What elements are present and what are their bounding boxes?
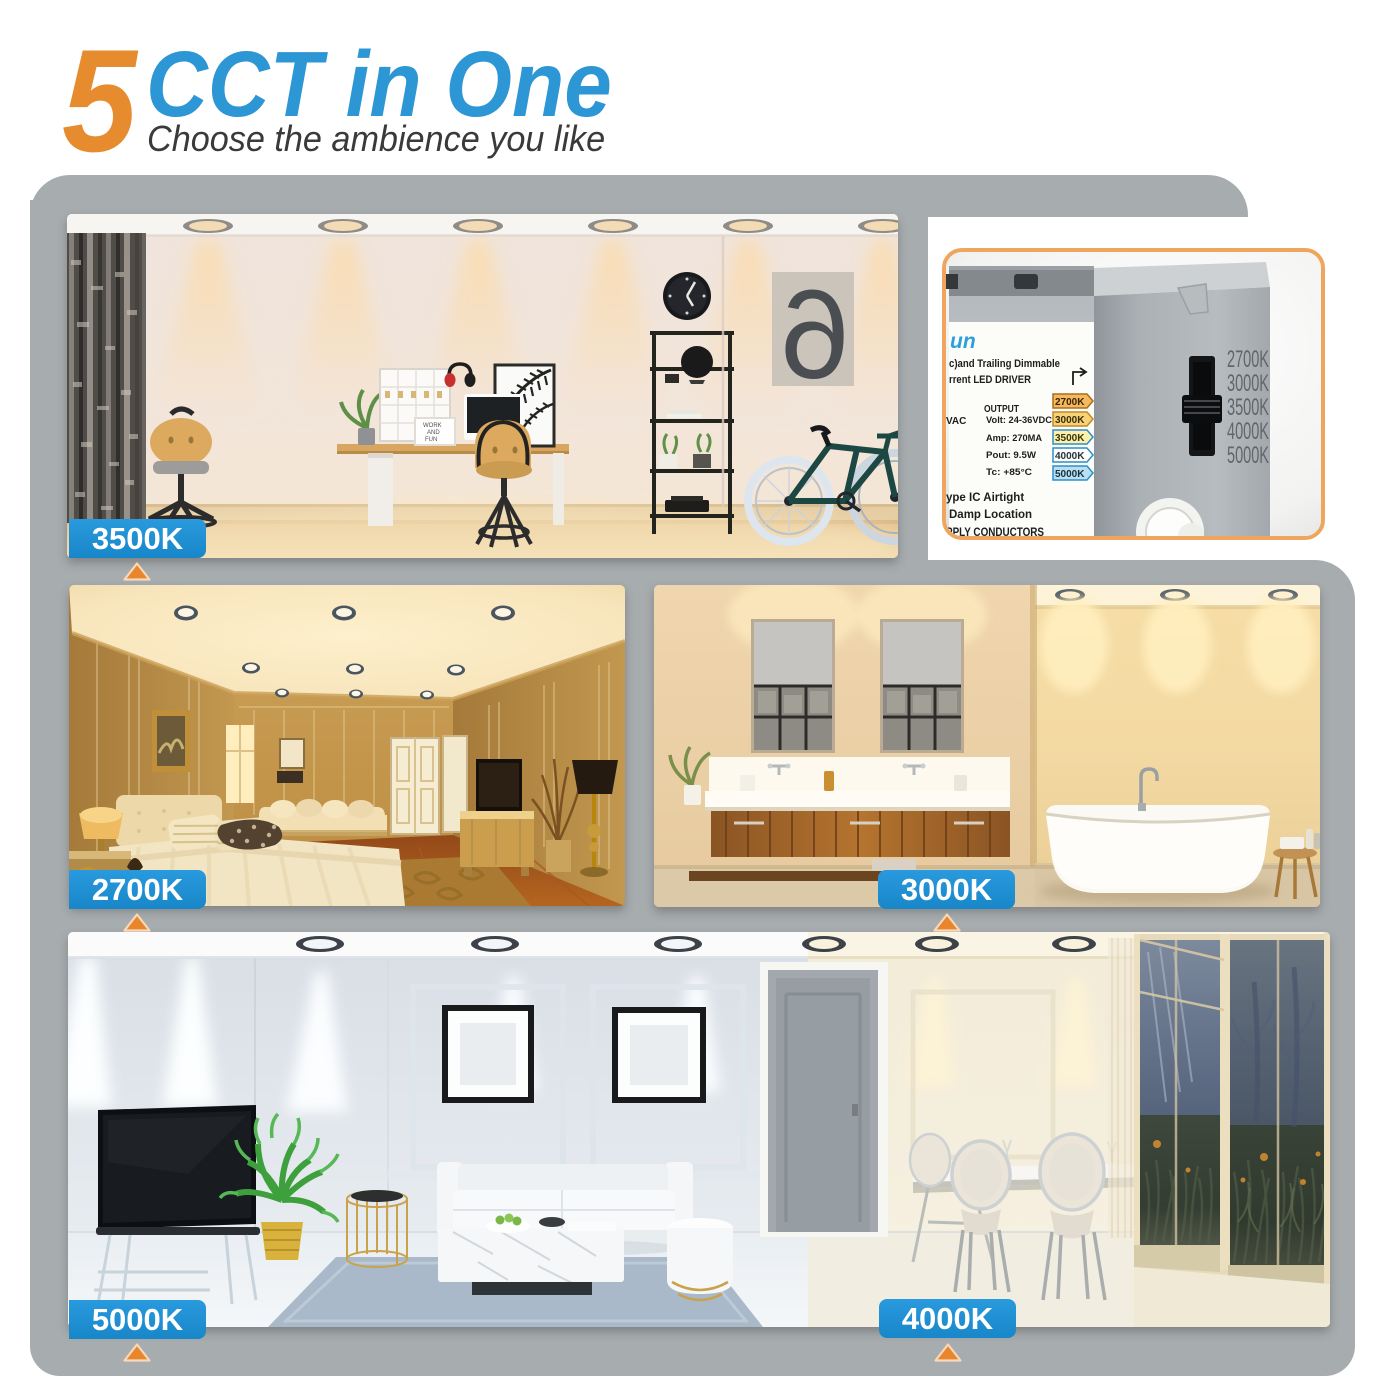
svg-text:un: un: [950, 330, 976, 353]
svg-text:2700K: 2700K: [1055, 397, 1085, 408]
svg-text:Damp Location: Damp Location: [949, 509, 1032, 521]
svg-text:Pout: 9.5W: Pout: 9.5W: [986, 450, 1036, 461]
svg-text:4000K: 4000K: [1055, 451, 1085, 462]
svg-text:WORK: WORK: [423, 423, 442, 429]
svg-text:c)and Trailing Dimmable: c)and Trailing Dimmable: [949, 358, 1060, 370]
svg-text:3000K: 3000K: [1227, 370, 1269, 397]
svg-text:VAC: VAC: [946, 416, 966, 427]
svg-text:ype IC Airtight: ype IC Airtight: [946, 492, 1024, 504]
svg-text:5000K: 5000K: [1055, 469, 1085, 480]
svg-text:Tc: +85°C: Tc: +85°C: [986, 467, 1032, 478]
svg-text:3000K: 3000K: [1055, 415, 1085, 426]
svg-text:3500K: 3500K: [1055, 433, 1085, 444]
svg-text:5000K: 5000K: [1227, 442, 1269, 469]
svg-text:OUTPUT: OUTPUT: [984, 403, 1019, 415]
svg-text:2700K: 2700K: [1227, 346, 1269, 373]
svg-text:6: 6: [780, 264, 850, 405]
svg-text:PPLY CONDUCTORS: PPLY CONDUCTORS: [946, 527, 1044, 536]
svg-text:Amp: 270MA: Amp: 270MA: [986, 433, 1042, 444]
svg-text:FUN: FUN: [425, 437, 437, 443]
svg-text:rrent LED DRIVER: rrent LED DRIVER: [949, 374, 1031, 386]
svg-text:3500K: 3500K: [1227, 394, 1269, 421]
svg-text:4000K: 4000K: [1227, 418, 1269, 445]
svg-text:Volt: 24-36VDC: Volt: 24-36VDC: [986, 415, 1052, 426]
svg-text:AND: AND: [427, 430, 440, 436]
